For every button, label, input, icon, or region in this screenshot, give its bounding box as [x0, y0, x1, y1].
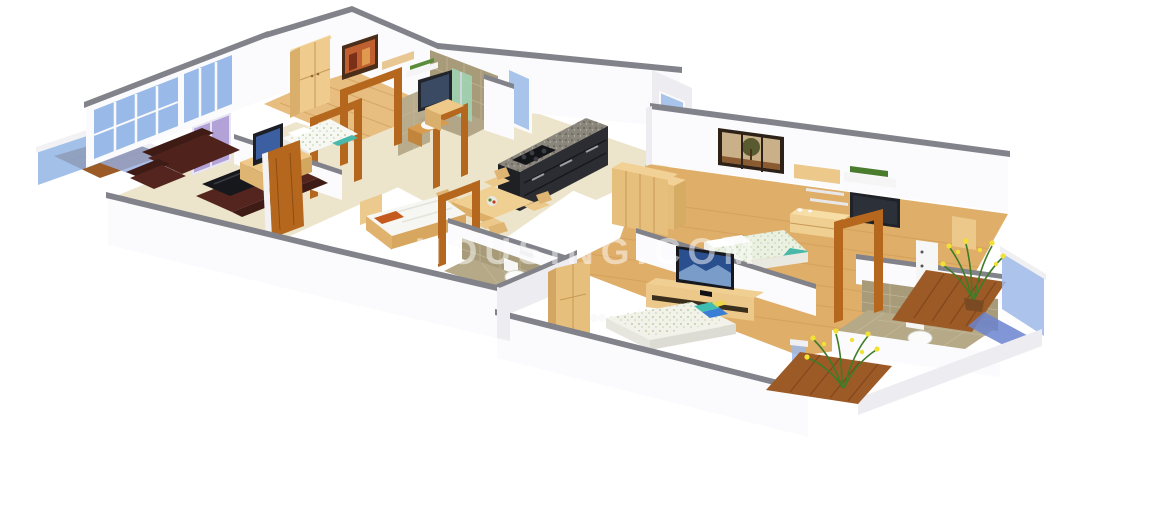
fruit — [492, 200, 495, 203]
living-room-door — [262, 140, 304, 242]
cabinet-side — [674, 180, 686, 230]
wardrobe-handle — [311, 75, 314, 78]
fruit-platter — [487, 196, 497, 206]
wardrobe-handle — [317, 73, 320, 76]
pantry-wall-face — [484, 79, 514, 140]
decor-sphere — [766, 288, 771, 293]
wardrobe-side — [290, 47, 300, 118]
wooden-door-leaf — [268, 140, 304, 238]
wall-art-detail — [362, 47, 370, 66]
decor-sphere — [757, 285, 764, 292]
housing-watermark: HOUSING.COM — [415, 231, 761, 272]
floor-plan-render: HOUSING.COM — [0, 0, 1160, 508]
floor-plan-page: HOUSING.COM — [0, 0, 1160, 508]
fruit — [488, 198, 491, 201]
decor-sphere — [590, 314, 598, 322]
wall-art-detail — [349, 52, 357, 71]
round-pillow — [598, 314, 606, 322]
decor-vase — [808, 210, 812, 213]
corner-cabinet — [952, 216, 976, 250]
decor-vase — [798, 208, 803, 212]
wall-edge-shade — [646, 106, 652, 166]
front-wall-step — [497, 287, 510, 341]
door-frame-post — [461, 103, 468, 177]
